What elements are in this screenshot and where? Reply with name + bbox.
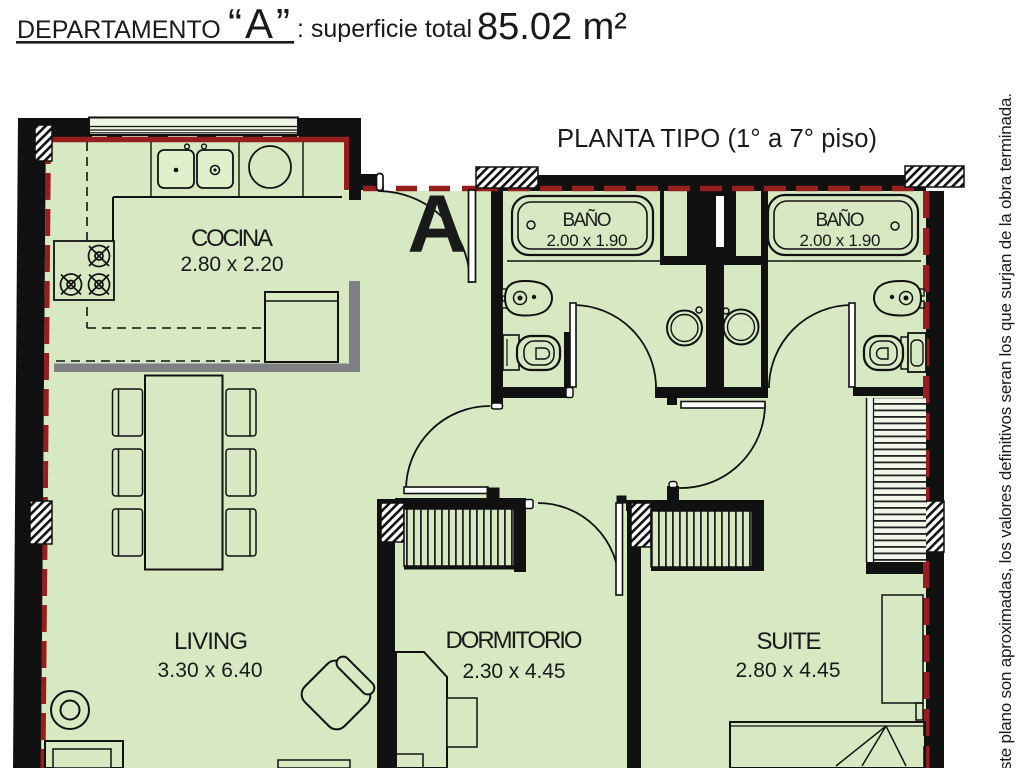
svg-text:PLANTA TIPO (1° a 7° piso): PLANTA TIPO (1° a 7° piso) bbox=[557, 125, 877, 153]
svg-text:SUITE: SUITE bbox=[757, 628, 822, 655]
svg-text:DEPARTAMENTO: DEPARTAMENTO bbox=[17, 16, 221, 44]
svg-text:BAÑO: BAÑO bbox=[563, 209, 612, 231]
svg-text:2.30 x 4.45: 2.30 x 4.45 bbox=[463, 660, 566, 683]
svg-text:2.00 x 1.90: 2.00 x 1.90 bbox=[800, 231, 881, 250]
svg-text:COCINA: COCINA bbox=[191, 225, 273, 252]
svg-text:“A”: “A” bbox=[228, 0, 290, 47]
svg-text:: superficie total: : superficie total bbox=[297, 15, 472, 43]
svg-text:BAÑO: BAÑO bbox=[816, 209, 865, 231]
svg-text:2.00 x 1.90: 2.00 x 1.90 bbox=[547, 231, 628, 250]
svg-text:85.02 m²: 85.02 m² bbox=[477, 6, 627, 48]
svg-text:ste plano son aproximadas, los: ste plano son aproximadas, los valores d… bbox=[996, 93, 1015, 768]
svg-text:2.80 x 4.45: 2.80 x 4.45 bbox=[736, 659, 841, 682]
svg-text:LIVING: LIVING bbox=[174, 628, 248, 655]
svg-text:A: A bbox=[407, 179, 466, 270]
svg-text:2.80 x 2.20: 2.80 x 2.20 bbox=[181, 253, 284, 276]
svg-text:DORMITORIO: DORMITORIO bbox=[446, 627, 583, 654]
svg-text:3.30 x 6.40: 3.30 x 6.40 bbox=[158, 659, 263, 682]
